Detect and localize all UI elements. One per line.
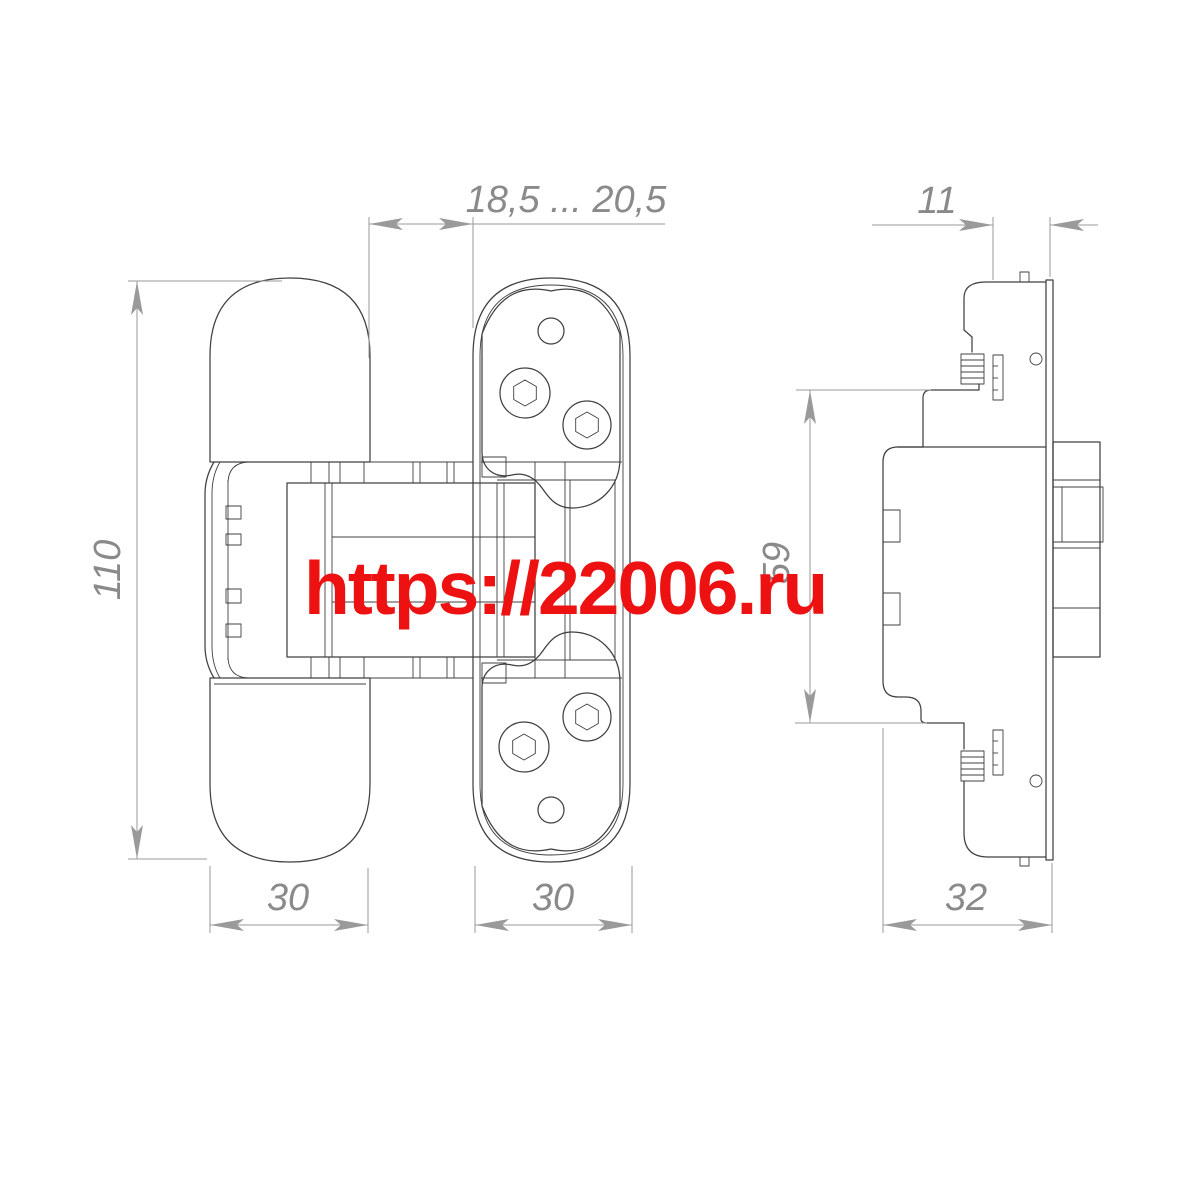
- side-view: [883, 272, 1103, 866]
- jamb-strip-inner: [212, 462, 220, 678]
- adjustment-screw-top: [961, 354, 984, 384]
- body-notch: [883, 593, 900, 625]
- hex-screw: [500, 368, 550, 418]
- technical-drawing-page: 18,5 ... 20,5 11 110 59 30: [0, 0, 1200, 1200]
- dimension-overall-height: 110: [87, 281, 282, 859]
- ratchet-strip-bottom: [993, 730, 1003, 775]
- body-notch: [883, 510, 900, 542]
- plate-lug-bottom: [1020, 857, 1029, 866]
- dimension-frame-width: 30: [475, 866, 632, 933]
- adjustment-screw-bottom: [961, 751, 984, 781]
- dimension-plate-depth: 11: [872, 180, 1098, 280]
- dimension-gap-range: 18,5 ... 20,5: [369, 179, 667, 358]
- connector-tab: [311, 462, 329, 483]
- dimension-leaf-width: 30: [210, 866, 368, 933]
- bottom-cap: [210, 678, 370, 862]
- connector-tab: [340, 462, 364, 483]
- lower-bracket: [964, 723, 1046, 857]
- mount-hole-bottom: [538, 797, 564, 823]
- hex-screw: [563, 693, 611, 741]
- mount-hole-top: [538, 318, 564, 344]
- plate-lug-top: [1020, 272, 1029, 282]
- cam-plate-bottom: [482, 632, 620, 851]
- connector-tab: [340, 657, 364, 678]
- ratchet-strip-top: [993, 355, 1003, 400]
- dimension-side-depth: 32: [883, 728, 1052, 933]
- upper-step: [923, 384, 979, 447]
- dimension-frame-width-label: 30: [532, 877, 574, 919]
- dimension-overall-height-label: 110: [87, 540, 129, 601]
- jamb-fillet-bottom: [228, 658, 248, 678]
- screw-hole-top: [1030, 353, 1042, 365]
- hex-screw: [563, 401, 611, 449]
- screw-hole-bottom: [1030, 775, 1042, 787]
- hex-screw: [499, 722, 549, 772]
- top-cap: [210, 278, 370, 462]
- upper-bracket: [964, 282, 1046, 352]
- side-plate: [1046, 280, 1053, 860]
- dimension-gap-label: 18,5 ... 20,5: [466, 179, 668, 221]
- body-outline: [883, 447, 964, 723]
- pivot-block: [1053, 442, 1103, 657]
- watermark-url-text: https://22006.ru: [304, 551, 826, 626]
- dimension-leaf-width-label: 30: [267, 877, 309, 919]
- connector-tab: [311, 657, 329, 678]
- jamb-fillet-top: [228, 462, 248, 482]
- dimension-side-depth-label: 32: [945, 877, 987, 919]
- dimension-plate-depth-label: 11: [917, 180, 956, 222]
- cam-plate-top: [482, 289, 620, 508]
- jamb-strip-outer: [205, 462, 214, 678]
